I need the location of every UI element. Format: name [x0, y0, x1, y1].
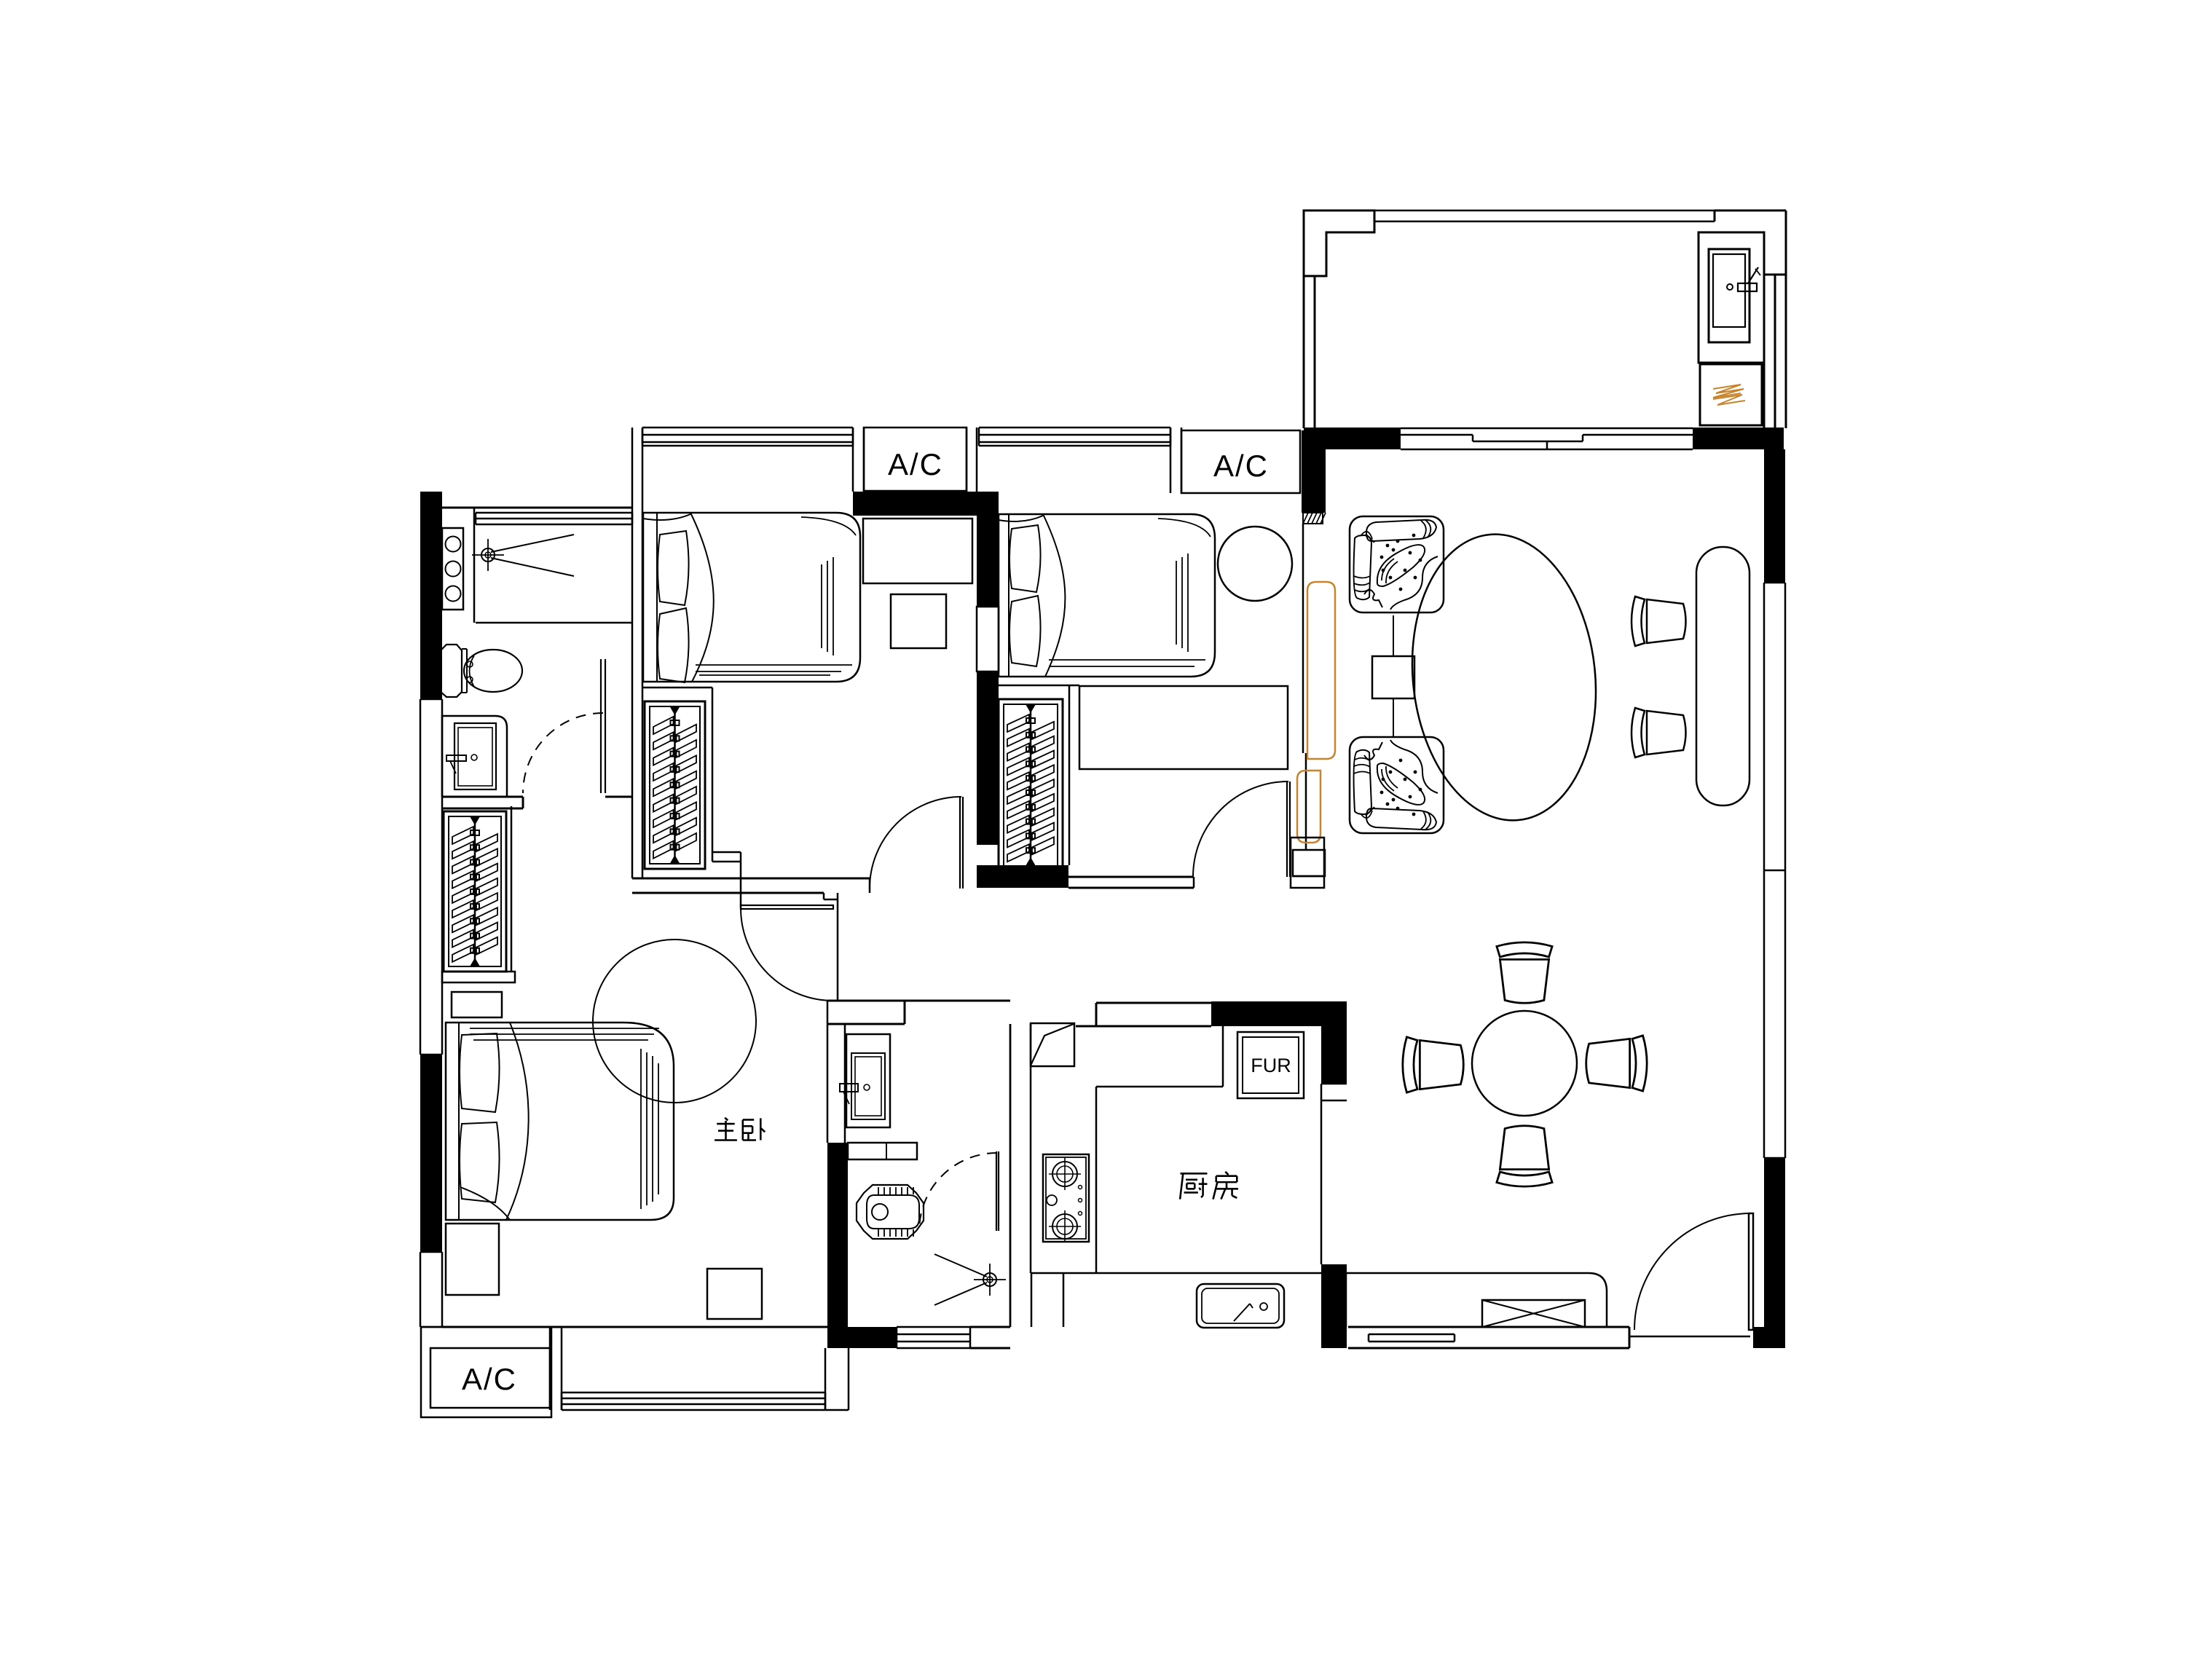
svg-text:FUR: FUR [1251, 1055, 1291, 1076]
svg-text:A/C: A/C [462, 1362, 517, 1396]
svg-text:A/C: A/C [1213, 449, 1269, 483]
svg-text:A/C: A/C [888, 447, 943, 481]
